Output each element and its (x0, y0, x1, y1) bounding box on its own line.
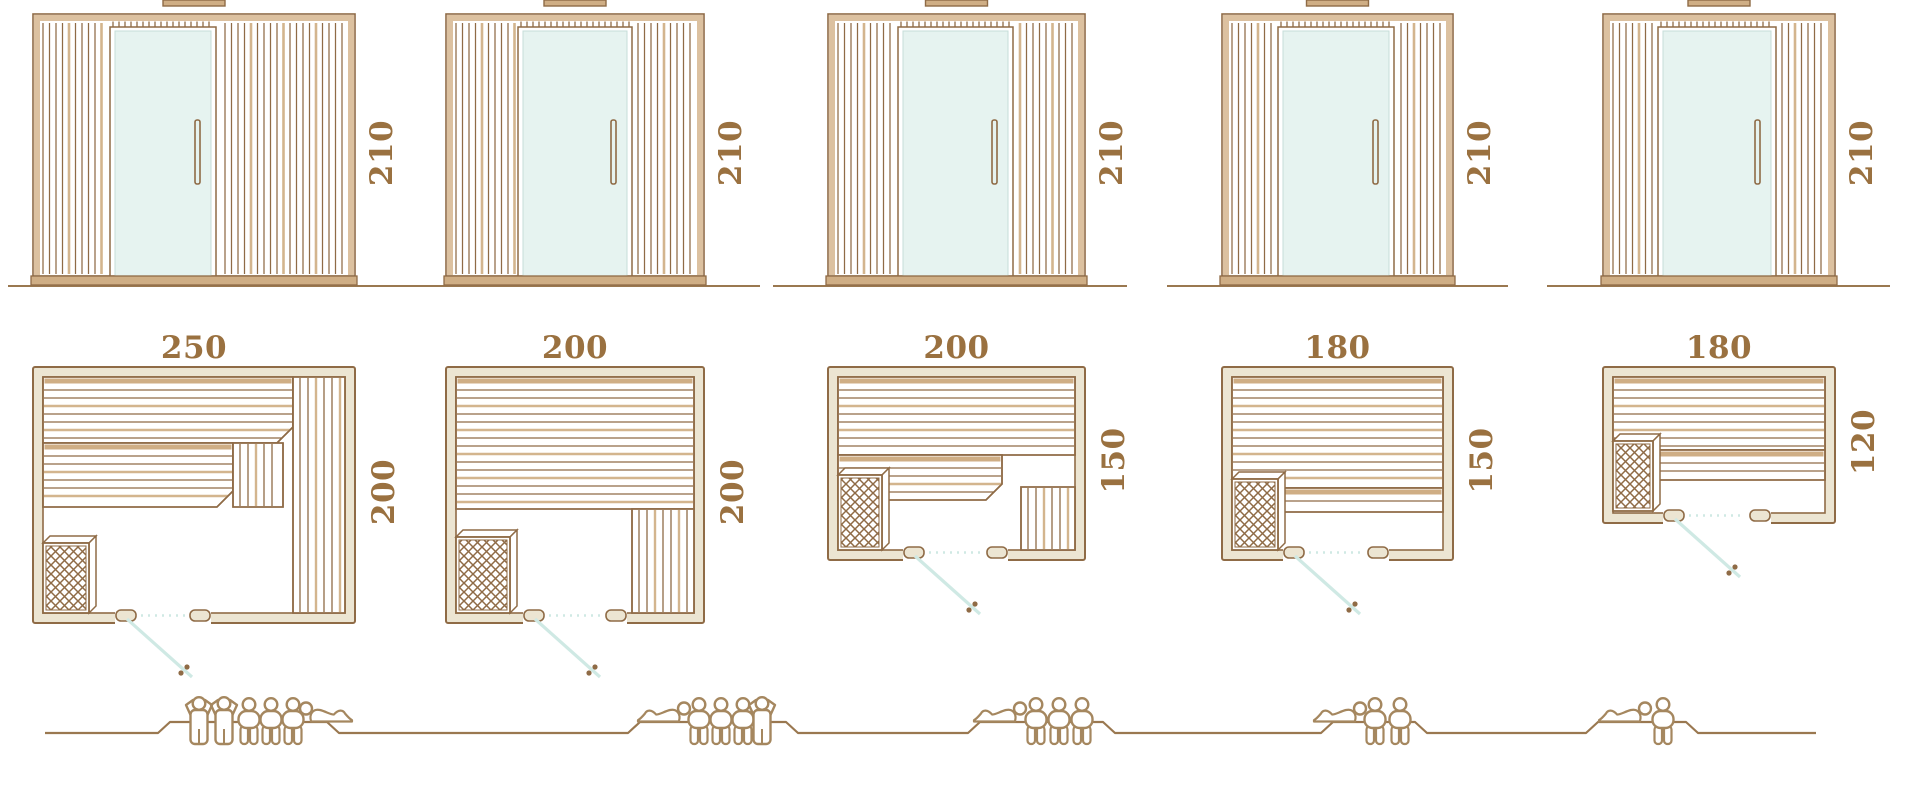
sauna-4-plan-view (1222, 367, 1453, 614)
sauna-3-depth-label: 150 (1096, 427, 1132, 493)
door-handle-dot (972, 601, 977, 606)
sitting-person-icon (1026, 698, 1047, 744)
sauna-4-width-label: 180 (1304, 330, 1370, 366)
door-handle-icon (195, 120, 200, 184)
front-right-post (1828, 15, 1834, 275)
front-top-band (829, 15, 1084, 21)
door-handle-dot (178, 670, 183, 675)
lying-person-icon (1314, 703, 1366, 722)
front-left-post (34, 15, 40, 275)
door-handle-dot (586, 670, 591, 675)
door-swing-line (127, 619, 192, 677)
door-jamb-cap (987, 547, 1007, 558)
door-handle-icon (1373, 120, 1378, 184)
bench (632, 509, 694, 613)
door-handle-dot (1346, 607, 1351, 612)
sauna-5-width-label: 180 (1686, 330, 1752, 366)
sauna-3-height-label: 210 (1094, 120, 1130, 186)
door-handle-dot (592, 664, 597, 669)
front-base-rail (31, 276, 357, 285)
sauna-2-height-label: 210 (713, 120, 749, 186)
door-handle-icon (611, 120, 616, 184)
sauna-3-capacity-figures (974, 698, 1093, 744)
sauna-1-front-view (31, 0, 357, 285)
sauna-comparison-diagram: 2102502002102002002102001502101801502101… (0, 0, 1920, 789)
bench (838, 377, 1075, 455)
sauna-5-plan-view (1603, 367, 1835, 577)
sitting-person-icon (1049, 698, 1070, 744)
bench (1021, 487, 1075, 550)
heater-icon (43, 536, 96, 613)
sitting-person-icon (1365, 698, 1386, 744)
sauna-2-plan-view (446, 367, 704, 677)
door-handle-icon (1755, 120, 1760, 184)
front-base-rail (826, 276, 1087, 285)
bench (456, 377, 694, 509)
sitting-person-icon (689, 698, 710, 744)
front-top-band (1223, 15, 1452, 21)
roof-vent-cap-icon (1307, 0, 1369, 6)
heater-icon (1613, 434, 1660, 511)
standing-person-icon (186, 697, 212, 744)
sitting-person-icon (711, 698, 732, 744)
sauna-1-depth-label: 200 (366, 459, 402, 525)
roof-vent-cap-icon (926, 0, 988, 6)
heater-icon (838, 468, 889, 550)
door-swing-line (1675, 519, 1740, 577)
sauna-1-height-label: 210 (364, 120, 400, 186)
front-base-rail (1601, 276, 1837, 285)
bench (233, 443, 283, 507)
sitting-person-icon (261, 698, 282, 744)
door-jamb-cap (1368, 547, 1388, 558)
sauna-2-front-view (444, 0, 706, 285)
door-jamb-cap (1664, 510, 1684, 521)
sauna-3-width-label: 200 (923, 330, 989, 366)
sauna-5-capacity-figures (1599, 698, 1674, 744)
standing-person-icon (749, 697, 775, 744)
sitting-person-icon (1390, 698, 1411, 744)
door-handle-dot (184, 664, 189, 669)
sauna-3-front-view (826, 0, 1087, 285)
sauna-2-width-label: 200 (542, 330, 608, 366)
door-jamb-cap (116, 610, 136, 621)
lying-person-icon (638, 703, 690, 722)
door-jamb-cap (606, 610, 626, 621)
front-base-rail (444, 276, 706, 285)
sitting-person-icon (1653, 698, 1674, 744)
bench (43, 377, 293, 443)
sitting-person-icon (1072, 698, 1093, 744)
front-left-post (1223, 15, 1229, 275)
front-top-band (34, 15, 354, 21)
door-jamb-cap (190, 610, 210, 621)
sauna-2-depth-label: 200 (715, 459, 751, 525)
door-jamb-cap (1284, 547, 1304, 558)
sauna-4-height-label: 210 (1462, 120, 1498, 186)
sitting-person-icon (239, 698, 260, 744)
capacity-ground-line (45, 722, 1816, 733)
door-swing-line (915, 556, 980, 614)
lying-person-icon (974, 703, 1026, 722)
front-left-post (829, 15, 835, 275)
door-swing-line (535, 619, 600, 677)
bench (43, 443, 233, 507)
front-right-post (1446, 15, 1452, 275)
sauna-3-plan-view (828, 367, 1085, 614)
front-right-post (1078, 15, 1084, 275)
door-handle-dot (1726, 570, 1731, 575)
sauna-4-depth-label: 150 (1464, 427, 1500, 493)
sauna-5-height-label: 210 (1844, 120, 1880, 186)
front-top-band (1604, 15, 1834, 21)
bench (1658, 450, 1825, 480)
front-right-post (348, 15, 354, 275)
bench (1283, 488, 1443, 512)
lying-person-icon (300, 703, 352, 722)
front-left-post (447, 15, 453, 275)
sauna-1-width-label: 250 (161, 330, 227, 366)
heater-icon (456, 530, 517, 613)
door-swing-line (1295, 556, 1360, 614)
sauna-4-front-view (1220, 0, 1455, 285)
front-right-post (697, 15, 703, 275)
heater-icon (1232, 472, 1285, 550)
lying-person-icon (1599, 703, 1651, 722)
sauna-5-depth-label: 120 (1846, 409, 1882, 475)
bench (293, 377, 345, 613)
sauna-5-front-view (1601, 0, 1837, 285)
front-top-band (447, 15, 703, 21)
door-handle-dot (1732, 564, 1737, 569)
sauna-2-capacity-figures (638, 697, 775, 744)
roof-vent-cap-icon (163, 0, 225, 6)
door-handle-dot (1352, 601, 1357, 606)
standing-person-icon (211, 697, 237, 744)
front-left-post (1604, 15, 1610, 275)
roof-vent-cap-icon (544, 0, 606, 6)
door-handle-icon (992, 120, 997, 184)
door-jamb-cap (1750, 510, 1770, 521)
front-base-rail (1220, 276, 1455, 285)
sauna-1-plan-view (33, 367, 355, 677)
roof-vent-cap-icon (1688, 0, 1750, 6)
door-jamb-cap (524, 610, 544, 621)
door-jamb-cap (904, 547, 924, 558)
diagram-canvas: 2102502002102002002102001502101801502101… (0, 0, 1920, 789)
sauna-1-capacity-figures (186, 697, 352, 744)
door-handle-dot (966, 607, 971, 612)
